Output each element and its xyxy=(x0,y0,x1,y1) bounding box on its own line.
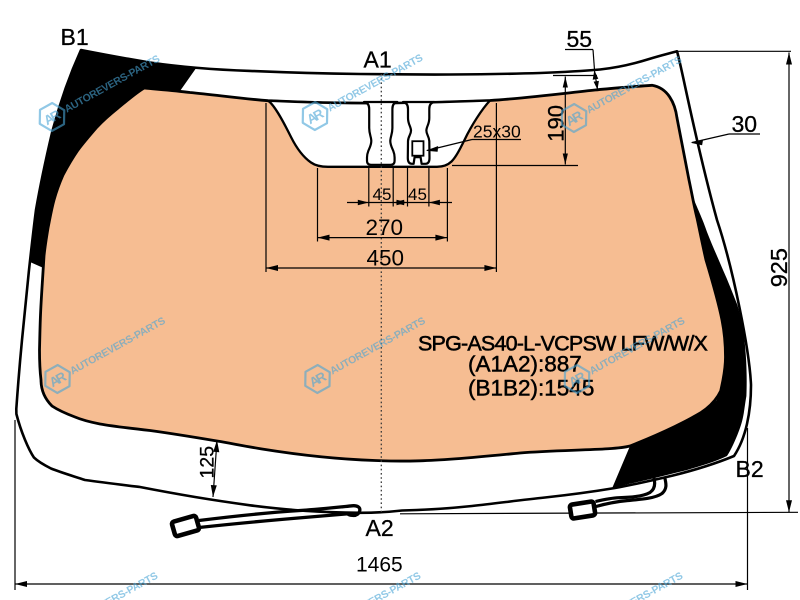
svg-text:30: 30 xyxy=(732,111,758,137)
svg-text:A2: A2 xyxy=(366,515,394,541)
svg-text:45: 45 xyxy=(373,185,392,204)
svg-text:45: 45 xyxy=(408,185,427,204)
svg-text:55: 55 xyxy=(567,26,593,52)
svg-text:125: 125 xyxy=(197,446,219,479)
svg-text:450: 450 xyxy=(367,246,405,271)
svg-text:270: 270 xyxy=(366,215,404,240)
svg-text:B2: B2 xyxy=(736,456,764,482)
svg-text:25x30: 25x30 xyxy=(473,122,521,142)
svg-text:B1: B1 xyxy=(61,24,89,50)
svg-text:925: 925 xyxy=(766,248,792,287)
svg-text:190: 190 xyxy=(544,105,569,142)
svg-text:1465: 1465 xyxy=(356,554,403,577)
